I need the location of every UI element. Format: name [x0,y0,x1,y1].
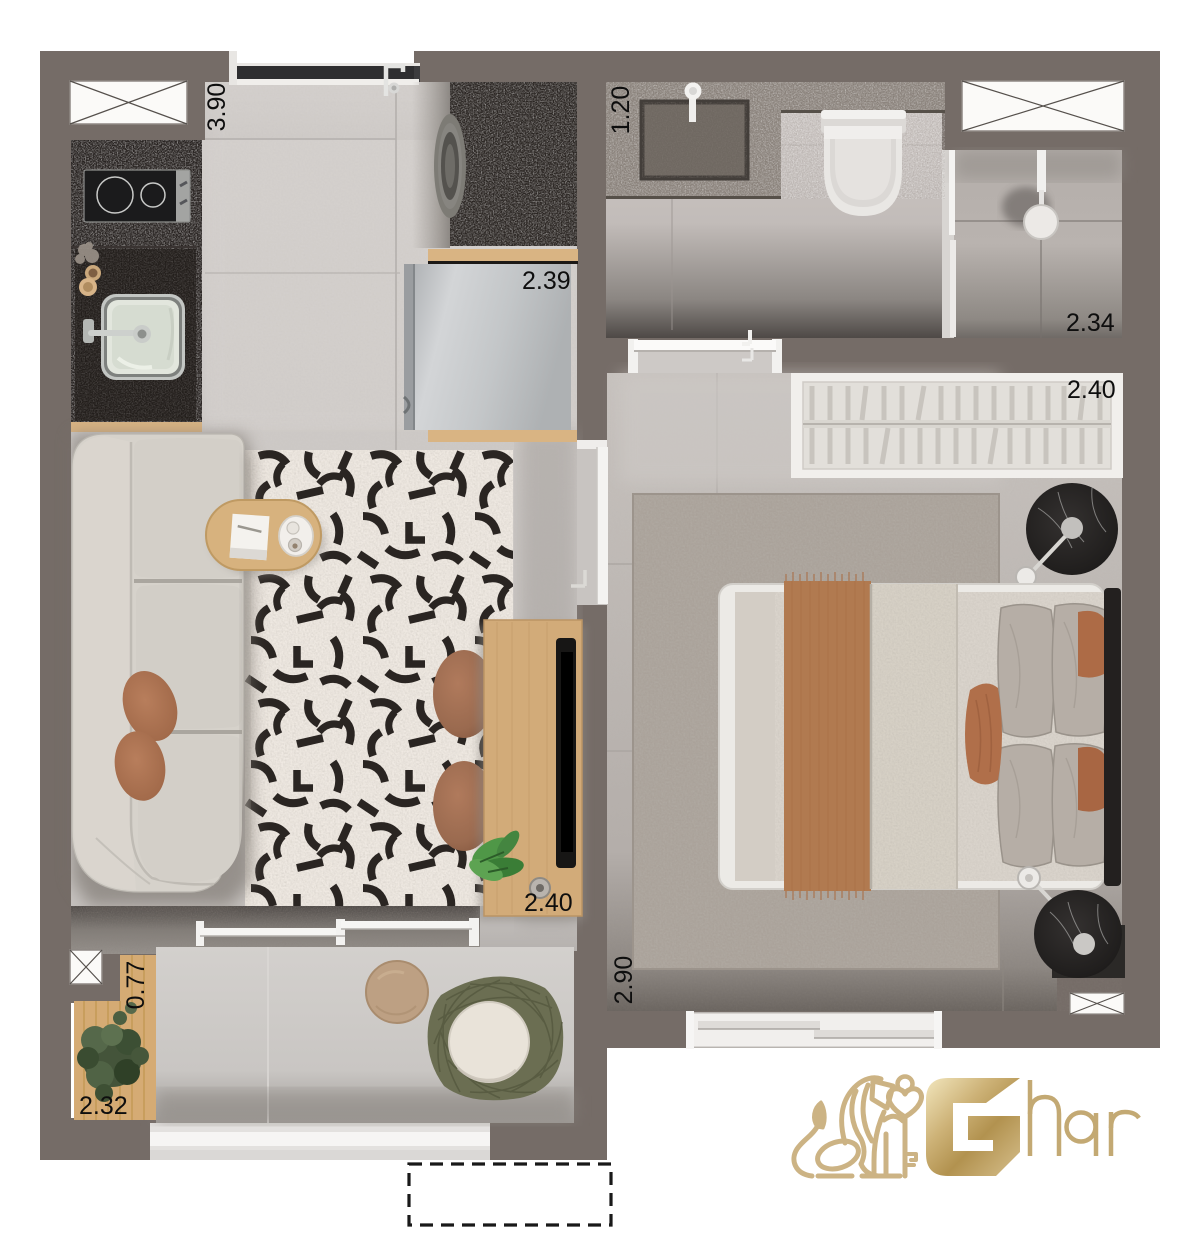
svg-text:2.90: 2.90 [610,956,638,1005]
svg-text:3.90: 3.90 [203,83,231,132]
svg-text:0.77: 0.77 [122,961,150,1010]
svg-text:2.40: 2.40 [524,889,573,917]
svg-text:2.40: 2.40 [1067,376,1116,404]
svg-text:2.39: 2.39 [522,267,571,295]
svg-text:2.34: 2.34 [1066,309,1115,337]
svg-text:2.32: 2.32 [79,1092,128,1120]
svg-text:1.20: 1.20 [607,86,635,135]
